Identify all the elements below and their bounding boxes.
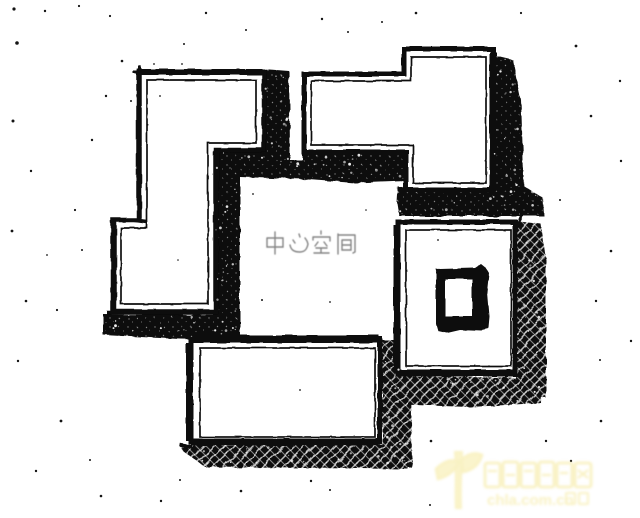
svg-text:chla.com.cn: chla.com.cn — [487, 492, 574, 509]
